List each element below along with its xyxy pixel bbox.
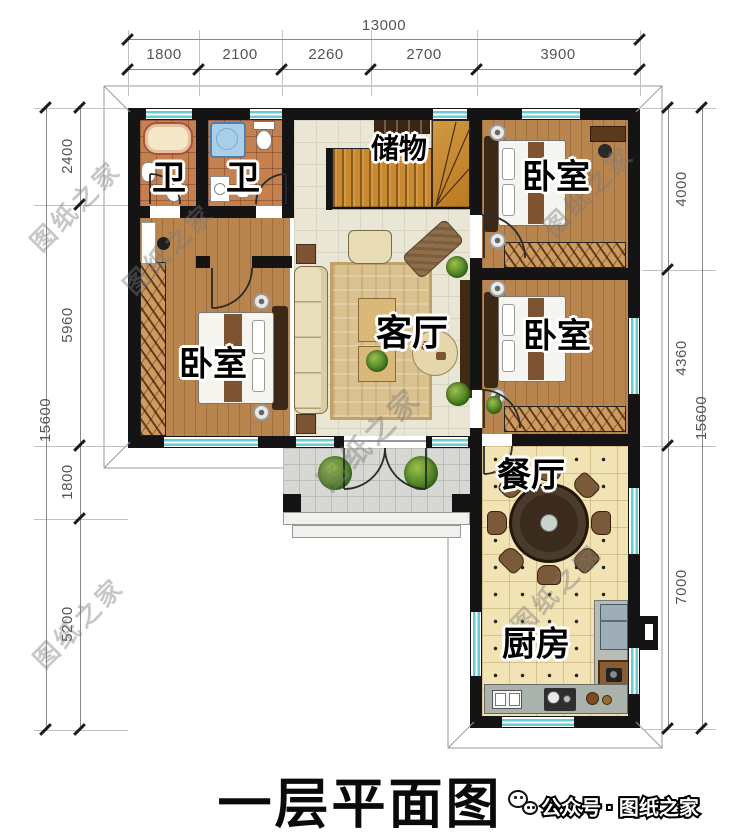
extension-line xyxy=(34,108,128,109)
room-label-kitchen: 厨房 xyxy=(502,617,570,666)
room-label-bedroom-left: 卧室 xyxy=(179,337,247,386)
extension-line xyxy=(642,108,716,109)
dim-left-total: 15600 xyxy=(38,380,54,460)
room-label-bathroom-1: 卫 xyxy=(152,151,186,200)
room-label-bathroom-2: 卫 xyxy=(226,151,260,200)
dim-right-seg: 4000 xyxy=(674,154,690,224)
room-label-storage: 储物 xyxy=(371,127,427,167)
extension-line xyxy=(34,519,128,520)
dim-right-seg: 4360 xyxy=(674,323,690,393)
dimension-line xyxy=(128,69,640,70)
publisher-label: 公众号 · 图纸之家 xyxy=(541,792,699,821)
dim-left-seg: 5960 xyxy=(60,290,76,360)
wechat-icon xyxy=(508,790,540,820)
wechat-eye xyxy=(532,806,535,809)
extension-line xyxy=(642,270,716,271)
dimension-line xyxy=(128,39,640,40)
page-title: 一层平面图 xyxy=(218,760,503,838)
dim-right-total: 15600 xyxy=(694,383,710,453)
dim-top-seg: 3900 xyxy=(532,47,584,63)
dim-left-seg: 1800 xyxy=(60,447,76,517)
room-label-dining-room: 餐厅 xyxy=(497,448,565,497)
dim-right-seg: 7000 xyxy=(674,552,690,622)
wechat-bubble-small xyxy=(522,801,538,815)
wechat-eye xyxy=(520,796,523,799)
wechat-eye xyxy=(514,796,517,799)
dim-top-total: 13000 xyxy=(344,18,424,34)
dim-top-seg: 1800 xyxy=(138,47,190,63)
dim-top-seg: 2100 xyxy=(214,47,266,63)
dim-top-seg: 2700 xyxy=(398,47,450,63)
extension-line xyxy=(34,730,128,731)
extension-line xyxy=(642,729,716,730)
floor-plan-page: 图纸之家 图纸之家 图纸之家 图纸之家 图纸之家 图纸之家 卫 卫 储物 卧室 … xyxy=(0,0,750,838)
room-label-living-room: 客厅 xyxy=(376,304,448,356)
dimension-line xyxy=(668,108,669,729)
wechat-eye xyxy=(527,806,530,809)
room-label-bedroom-mid-right: 卧室 xyxy=(523,309,591,358)
dim-top-seg: 2260 xyxy=(300,47,352,63)
room-label-bedroom-top-right: 卧室 xyxy=(522,150,590,199)
